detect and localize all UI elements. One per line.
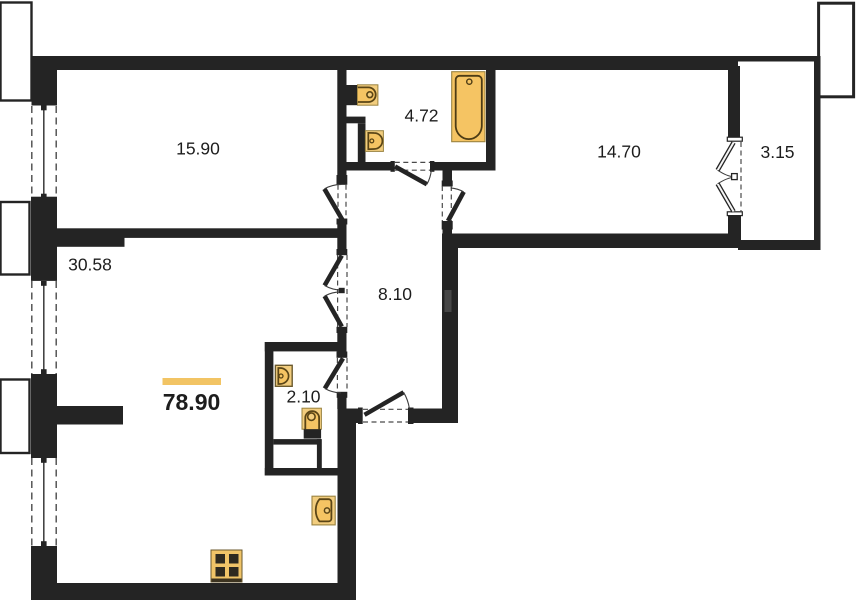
svg-text:30.58: 30.58: [68, 255, 112, 275]
svg-text:2.10: 2.10: [286, 387, 320, 407]
svg-text:15.90: 15.90: [176, 139, 220, 159]
svg-text:3.15: 3.15: [760, 142, 794, 162]
svg-text:8.10: 8.10: [378, 284, 412, 304]
svg-text:14.70: 14.70: [597, 142, 641, 162]
svg-text:4.72: 4.72: [404, 106, 438, 126]
svg-text:78.90: 78.90: [163, 389, 221, 415]
